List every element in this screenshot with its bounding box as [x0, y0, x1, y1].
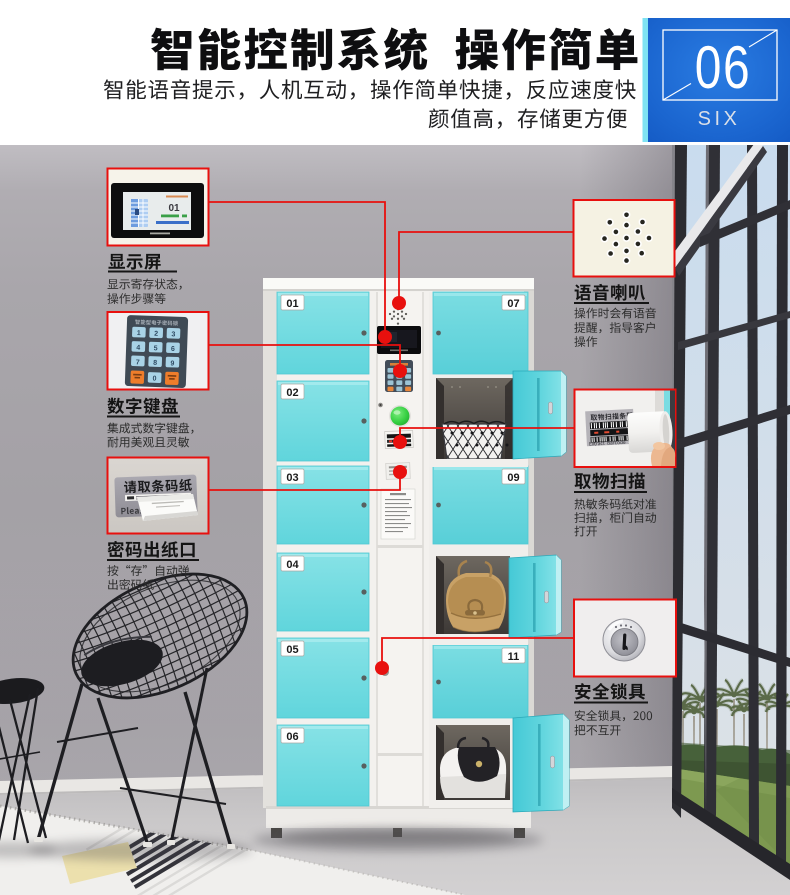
- svg-text:07: 07: [507, 298, 519, 310]
- svg-text:01: 01: [286, 298, 298, 310]
- svg-text:06: 06: [286, 731, 298, 743]
- svg-text:SIX: SIX: [698, 108, 741, 130]
- svg-text:06: 06: [695, 34, 752, 101]
- svg-text:02: 02: [286, 387, 298, 399]
- svg-text:01: 01: [168, 203, 180, 214]
- svg-text:6: 6: [171, 346, 175, 353]
- svg-text:1: 1: [137, 330, 141, 337]
- svg-text:5: 5: [154, 345, 158, 352]
- svg-text:05: 05: [286, 644, 298, 656]
- svg-text:9: 9: [170, 360, 174, 367]
- svg-text:0: 0: [152, 375, 156, 382]
- svg-text:3: 3: [171, 331, 175, 338]
- svg-text:8: 8: [153, 360, 157, 367]
- svg-text:04: 04: [286, 559, 299, 571]
- svg-text:2: 2: [154, 331, 158, 338]
- svg-text:4: 4: [136, 345, 140, 352]
- svg-text:09: 09: [507, 472, 519, 484]
- svg-text:03: 03: [286, 472, 298, 484]
- svg-text:11: 11: [508, 651, 520, 663]
- svg-text:7: 7: [136, 359, 140, 366]
